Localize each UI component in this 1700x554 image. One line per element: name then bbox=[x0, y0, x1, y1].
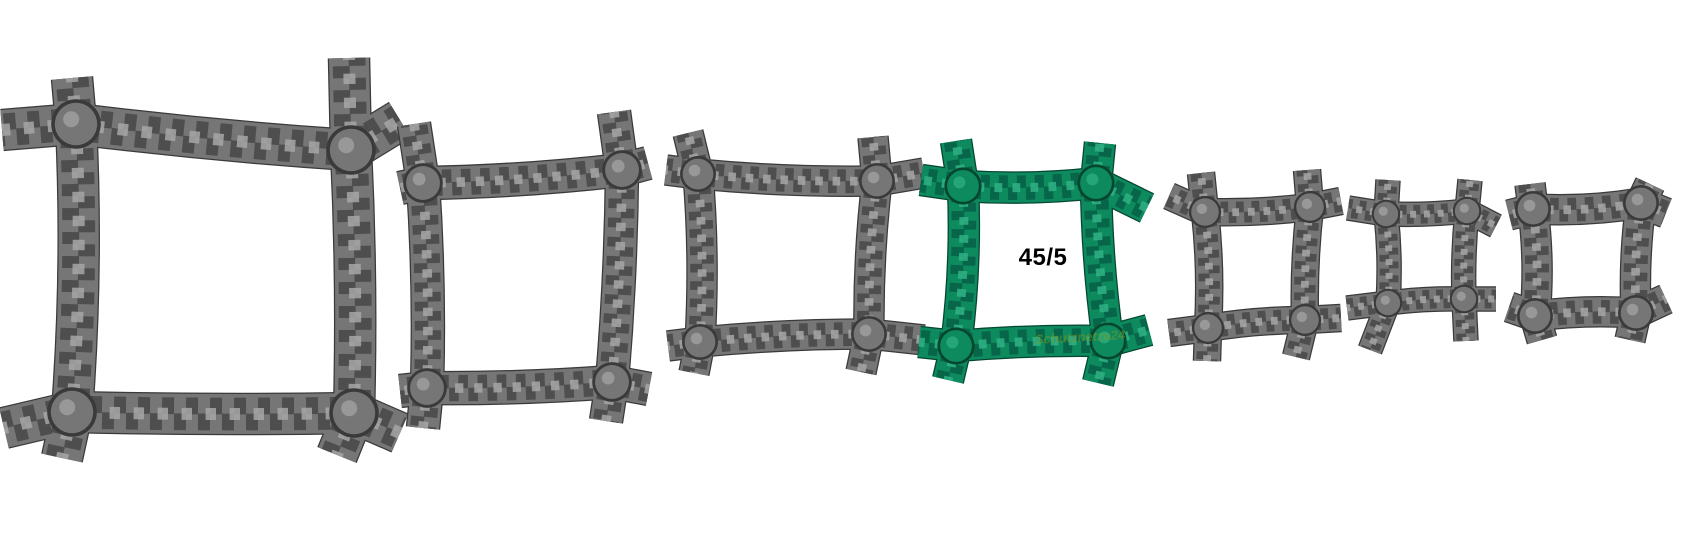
mesh-svg bbox=[0, 0, 1700, 554]
mesh-option-1[interactable] bbox=[1, 58, 404, 460]
rope-segment bbox=[72, 404, 354, 406]
rope-knot-highlight bbox=[691, 333, 703, 345]
mesh-option-6[interactable] bbox=[1346, 180, 1498, 352]
rope-knot-highlight bbox=[860, 325, 872, 337]
rope-knot-highlight bbox=[946, 336, 958, 348]
rope-knot-highlight bbox=[1379, 207, 1388, 216]
rope-knot-highlight bbox=[868, 172, 880, 184]
mesh-option-2[interactable] bbox=[399, 111, 651, 429]
rope-knot-highlight bbox=[953, 176, 965, 188]
rope-knot-highlight bbox=[1524, 200, 1536, 212]
rope-knot-highlight bbox=[689, 165, 701, 177]
rope-knot-highlight bbox=[1632, 194, 1644, 206]
rope-knot-highlight bbox=[341, 400, 357, 416]
rope-knot-highlight bbox=[612, 160, 625, 173]
rope-knot-highlight bbox=[1302, 199, 1312, 209]
rope-knot-highlight bbox=[338, 137, 354, 153]
rope-knot-highlight bbox=[1086, 173, 1098, 185]
mesh-option-7[interactable] bbox=[1507, 182, 1668, 342]
rope-knot-highlight bbox=[1627, 304, 1639, 316]
rope-knot-highlight bbox=[1200, 320, 1210, 330]
rope-knot-highlight bbox=[63, 111, 79, 127]
rope-knot-highlight bbox=[602, 372, 615, 385]
rope-knot-highlight bbox=[59, 399, 75, 415]
rope-knot-highlight bbox=[1526, 307, 1538, 319]
mesh-size-gallery: Schutznetze24 45/5 bbox=[0, 0, 1700, 554]
rope-segment bbox=[956, 347, 1108, 352]
mesh-option-3[interactable] bbox=[665, 132, 925, 374]
rope-knot-highlight bbox=[1297, 312, 1307, 322]
rope-knot-highlight bbox=[1098, 331, 1110, 343]
rope-knot-highlight bbox=[413, 173, 426, 186]
rope-knot-highlight bbox=[1381, 296, 1390, 305]
rope-knot-highlight bbox=[417, 378, 430, 391]
rope-segment bbox=[72, 412, 354, 414]
rope-knot-highlight bbox=[1460, 204, 1469, 213]
mesh-option-5[interactable] bbox=[1167, 170, 1342, 362]
mesh-size-label: 45/5 bbox=[1019, 244, 1068, 272]
rope-knot-highlight bbox=[1457, 292, 1466, 301]
rope-knot-highlight bbox=[1197, 204, 1207, 214]
